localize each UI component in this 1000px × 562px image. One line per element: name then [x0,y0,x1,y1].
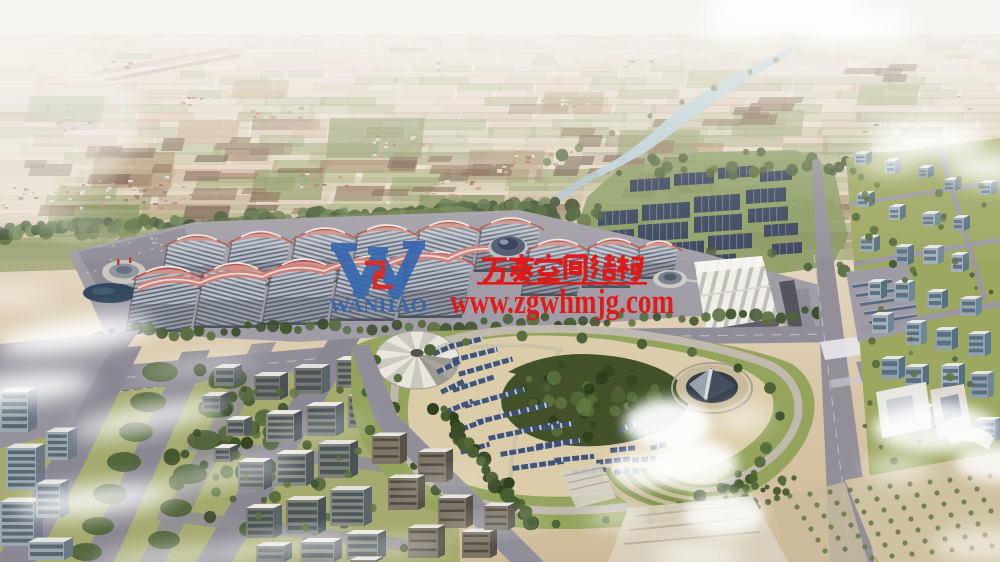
svg-text:www.zgwhmjg.com: www.zgwhmjg.com [450,282,674,321]
svg-text:WANHAO: WANHAO [329,295,427,317]
